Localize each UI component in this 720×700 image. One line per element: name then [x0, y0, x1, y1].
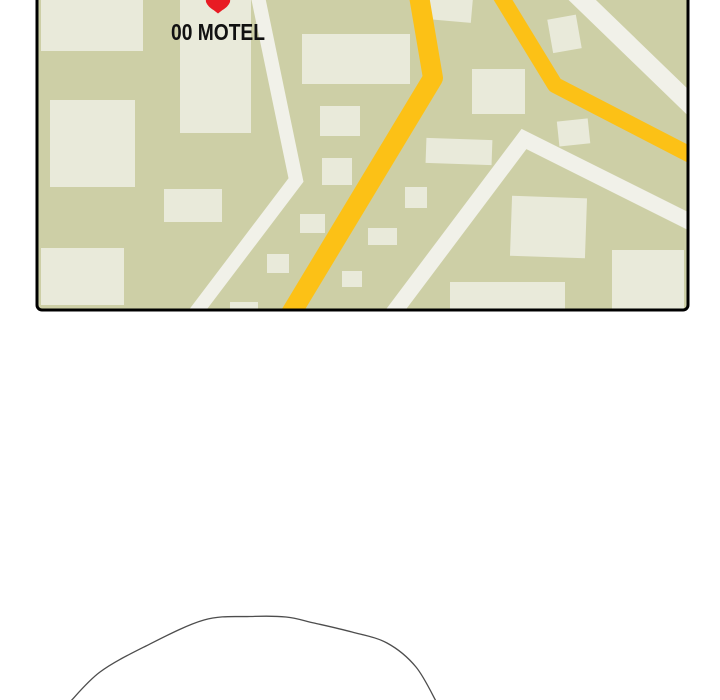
svg-text:00 MOTEL: 00 MOTEL [171, 19, 265, 45]
